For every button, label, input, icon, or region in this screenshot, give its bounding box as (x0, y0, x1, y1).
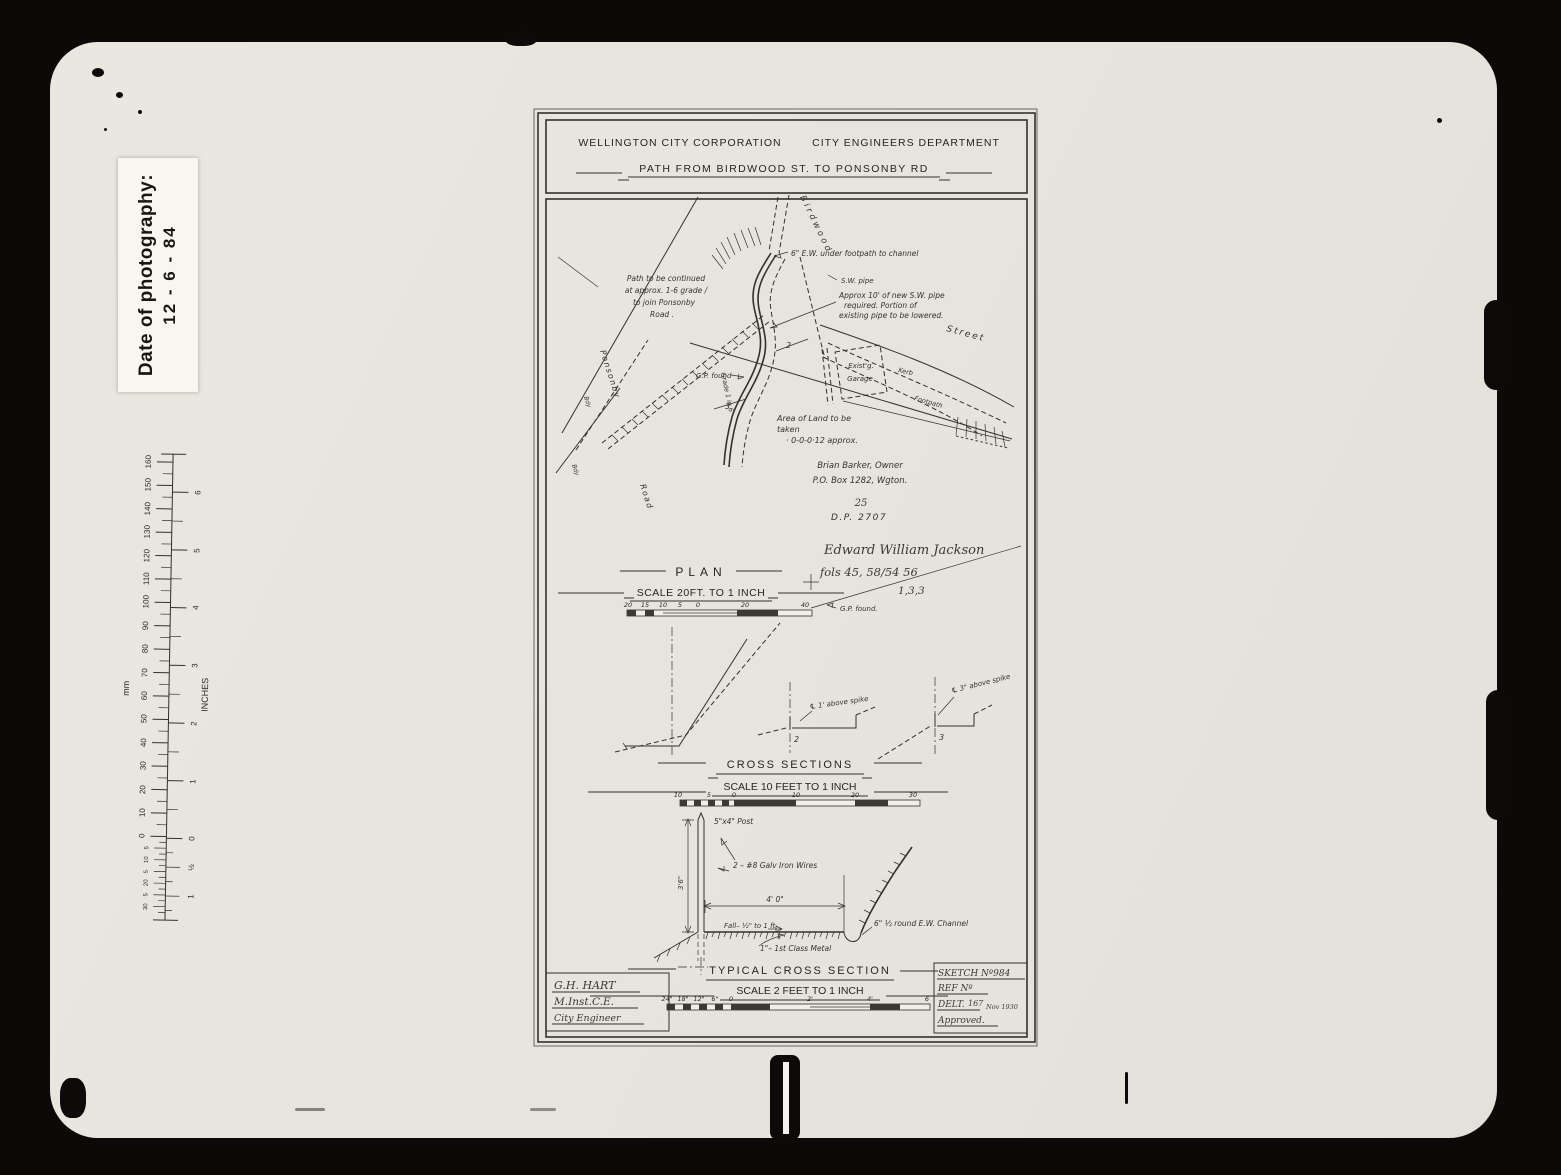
frame-tick (530, 1108, 556, 1111)
inch-tick-label: 3 (190, 663, 199, 668)
birdwood-street-label: Birdwood (797, 194, 834, 256)
plan-section-2: 2 (786, 341, 791, 350)
mm-tick-label: 120 (142, 548, 151, 562)
film-edge-blob (1484, 300, 1510, 390)
mm-sub-label: 5 (144, 869, 150, 873)
mm-sub-label: 10 (144, 856, 150, 863)
engineer-block: G.H. HART M.Inst.C.E. City Engineer (546, 973, 669, 1031)
mm-sub-label: 20 (144, 879, 150, 886)
film-speck (138, 110, 142, 114)
dp-number: D.P. 2707 (831, 513, 887, 523)
corporation-title: WELLINGTON CITY CORPORATION (578, 137, 781, 149)
ts-scale-tick: 24" (661, 995, 672, 1003)
kerb-label: Kerb (898, 366, 914, 377)
date-label-value: 12 - 6 - 84 (160, 225, 180, 325)
path-note-line: to join Ponsonby (633, 298, 696, 307)
typical-title: TYPICAL CROSS SECTION (709, 965, 891, 977)
metal-label: 1"– 1st Class Metal (760, 944, 832, 953)
mm-tick-label: 70 (140, 668, 149, 678)
cs-scale-tick: 30 (909, 791, 917, 799)
sheet-borders (534, 109, 1037, 1046)
inch-tick-label: 2 (189, 721, 198, 726)
plan-title: PLAN (675, 565, 726, 579)
sketch-number-block: SKETCH Nº984 REF Nº DELT. 167 Nov 1930 A… (934, 963, 1027, 1033)
mm-tick-label: 10 (138, 808, 147, 818)
inch-tick-label: 4 (191, 605, 200, 610)
cross-sections-scale-bar: 10 5 0 10 20 30 (674, 791, 920, 806)
plan-scale-bar: 20 15 10 5 0 20 40 (624, 601, 812, 616)
ts-scale-tick: 4' (867, 995, 873, 1003)
cross-sections-scale: SCALE 10 FEET TO 1 INCH (723, 781, 856, 793)
handwritten-folios: fols 45, 58/54 56 (819, 565, 918, 579)
post-label: 5"x4" Post (714, 817, 754, 826)
pipe-note-line: existing pipe to be lowered. (839, 311, 944, 320)
inch-tick-label: 6 (193, 490, 202, 495)
ponsonby-label: Ponsonby (598, 349, 622, 400)
plan-labels: Birdwood 6" E.W. under footpath to chann… (570, 194, 986, 613)
boundary-label: Bdy (582, 395, 592, 409)
area-note-line: · 0-0-0·12 approx. (786, 436, 858, 445)
cs-scale-tick: 0 (732, 791, 736, 799)
garage-label: Garage (847, 375, 873, 383)
owner-line: P.O. Box 1282, Wgton. (813, 476, 908, 486)
drawing-sheet: WELLINGTON CITY CORPORATION CITY ENGINEE… (528, 105, 1038, 1050)
section-2-spike-note: ℄ 1' above spike (809, 695, 869, 711)
engineer-role: City Engineer (554, 1013, 622, 1024)
film-speck (92, 68, 104, 77)
mm-tick-label: 130 (143, 524, 152, 538)
film-edge-blob (1486, 690, 1510, 820)
title-block: WELLINGTON CITY CORPORATION CITY ENGINEE… (576, 137, 1000, 180)
path-note-line: at approx. 1-6 grade / (625, 286, 709, 295)
frame-tick (295, 1108, 325, 1111)
ts-scale-tick: 6 (925, 995, 929, 1003)
gp-found-label-2: G.P. found. (840, 605, 878, 613)
delt-label: DELT. (937, 1000, 965, 1010)
ruler-mm-unit: mm (121, 681, 131, 696)
area-note-line: Area of Land to be (776, 414, 851, 423)
channel-label: 6" ½ round E.W. Channel (874, 919, 969, 928)
lot-number: 25 (854, 498, 868, 509)
sketch-date: Nov 1930 (985, 1003, 1018, 1011)
mm-tick-label: 160 (144, 454, 153, 468)
mm-tick-label: 60 (140, 691, 149, 701)
handwritten-name: Edward William Jackson (823, 543, 984, 558)
film-speck (116, 92, 123, 98)
ref-number: REF Nº (937, 984, 973, 994)
department-title: CITY ENGINEERS DEPARTMENT (812, 137, 1000, 149)
mm-sub-label: 5 (144, 845, 150, 849)
road-label: Road (638, 483, 655, 511)
footpath-label: Footpath (913, 394, 943, 410)
plan-scale-label: SCALE 20FT. TO 1 INCH (637, 587, 766, 599)
handwritten-numbers: 1,3,3 (898, 585, 925, 597)
ts-scale-tick: 18" (677, 995, 688, 1003)
mm-tick-label: 40 (139, 738, 148, 748)
inch-sub-label: 1 (186, 894, 195, 899)
film-speck (1437, 118, 1442, 123)
plan-scale-tick: 10 (659, 601, 667, 609)
mm-sub-label: 30 (143, 903, 149, 910)
film-speck (505, 30, 537, 46)
frame-registration-line (783, 1062, 789, 1134)
plan-scale-block: PLAN SCALE 20FT. TO 1 INCH 20 15 10 5 0 … (558, 565, 844, 616)
mm-tick-label: 20 (138, 785, 147, 795)
plan-scale-tick: 20 (624, 601, 632, 609)
mm-tick-label: 90 (141, 621, 150, 631)
plan-scale-tick: 20 (741, 601, 749, 609)
boundary-label: Bdy (570, 463, 580, 477)
section-3-number: 3 (939, 733, 944, 742)
mm-tick-label: 110 (142, 572, 151, 585)
inch-tick-label: 0 (187, 836, 196, 841)
path-note-line: Path to be continued (627, 274, 705, 283)
ts-scale-tick: 12" (693, 995, 704, 1003)
mm-tick-label: 50 (139, 714, 148, 724)
cross-sections-group: 2 ℄ 1' above spike 3 ℄ 3" above spike CR… (588, 623, 1011, 806)
fall-note: Fall– ½" to 1 ft (724, 922, 776, 930)
engineer-qualification: M.Inst.C.E. (553, 996, 614, 1008)
cs-scale-tick: 20 (851, 791, 859, 799)
ruler-inches-unit: INCHES (200, 678, 211, 712)
area-note-line: taken (777, 425, 800, 434)
delt-number: 167 (968, 999, 984, 1008)
film-speck (104, 128, 107, 131)
mm-tick-label: 0 (137, 833, 146, 838)
ts-scale-tick: 2' (807, 995, 813, 1003)
post-height-dim: 3'6" (677, 876, 685, 890)
wires-label: 2 – #8 Galv Iron Wires (733, 861, 817, 870)
ruler-lines (149, 454, 189, 920)
cross-sections-title: CROSS SECTIONS (727, 759, 853, 771)
sketch-number: SKETCH Nº984 (938, 969, 1011, 979)
garage-label: Exist'g. (848, 362, 874, 370)
drawing-title: PATH FROM BIRDWOOD ST. TO PONSONBY RD (639, 163, 928, 175)
mm-sub-label: 5 (143, 892, 149, 896)
path-note-line: Road . (650, 310, 674, 319)
mm-tick-label: 150 (143, 477, 152, 491)
photographic-ruler: 160 150 140 130 120 110 100 90 80 70 60 … (108, 441, 217, 938)
typical-scale: SCALE 2 FEET TO 1 INCH (736, 985, 863, 997)
street-label: Street (945, 324, 986, 344)
sw-pipe-label: S.W. pipe (841, 277, 874, 285)
mm-tick-label: 140 (143, 501, 152, 515)
date-of-photography-label: Date of photography: 12 - 6 - 84 (118, 158, 198, 392)
cs-scale-tick: 10 (792, 791, 800, 799)
scanned-photograph: Date of photography: 12 - 6 - 84 160 150… (0, 0, 1561, 1175)
plan-scale-tick: 5 (678, 601, 682, 609)
ts-scale-tick: 6" (711, 995, 718, 1003)
ew-pipe-note: 6" E.W. under footpath to channel (791, 249, 919, 258)
typical-cross-section-group: 3'6" 5"x4" Post 2 – #8 Galv Iron Wires 4… (590, 813, 969, 1010)
inch-tick-label: 5 (192, 548, 201, 553)
plan-scale-tick: 40 (801, 601, 809, 609)
mm-tick-label: 30 (139, 761, 148, 771)
pipe-note-line: required. Portion of (844, 301, 918, 310)
cs-scale-tick: 10 (674, 791, 682, 799)
pipe-note-line: Approx 10' of new S.W. pipe (838, 291, 945, 300)
engineer-name: G.H. HART (554, 979, 617, 992)
frame-tick (1125, 1072, 1128, 1104)
owner-line: Brian Barker, Owner (817, 461, 903, 471)
plan-scale-tick: 15 (641, 601, 649, 609)
date-label-title: Date of photography: (136, 174, 158, 376)
cs-scale-tick: 5 (707, 791, 711, 799)
section-3-spike-note: ℄ 3" above spike (951, 673, 1012, 695)
path-width-dim: 4' 0" (766, 895, 783, 904)
approved-label: Approved. (937, 1016, 985, 1026)
mm-tick-label: 100 (141, 594, 150, 608)
mm-tick-label: 80 (141, 644, 150, 654)
ts-scale-tick: 0 (729, 995, 733, 1003)
inch-sub-label: ½ (187, 864, 196, 871)
film-speck (60, 1078, 86, 1118)
typical-scale-bar: 24" 18" 12" 6" 0 2' 4' 6 (661, 995, 930, 1010)
inch-tick-label: 1 (188, 779, 197, 784)
section-2-number: 2 (794, 735, 799, 744)
plan-scale-tick: 0 (696, 601, 700, 609)
